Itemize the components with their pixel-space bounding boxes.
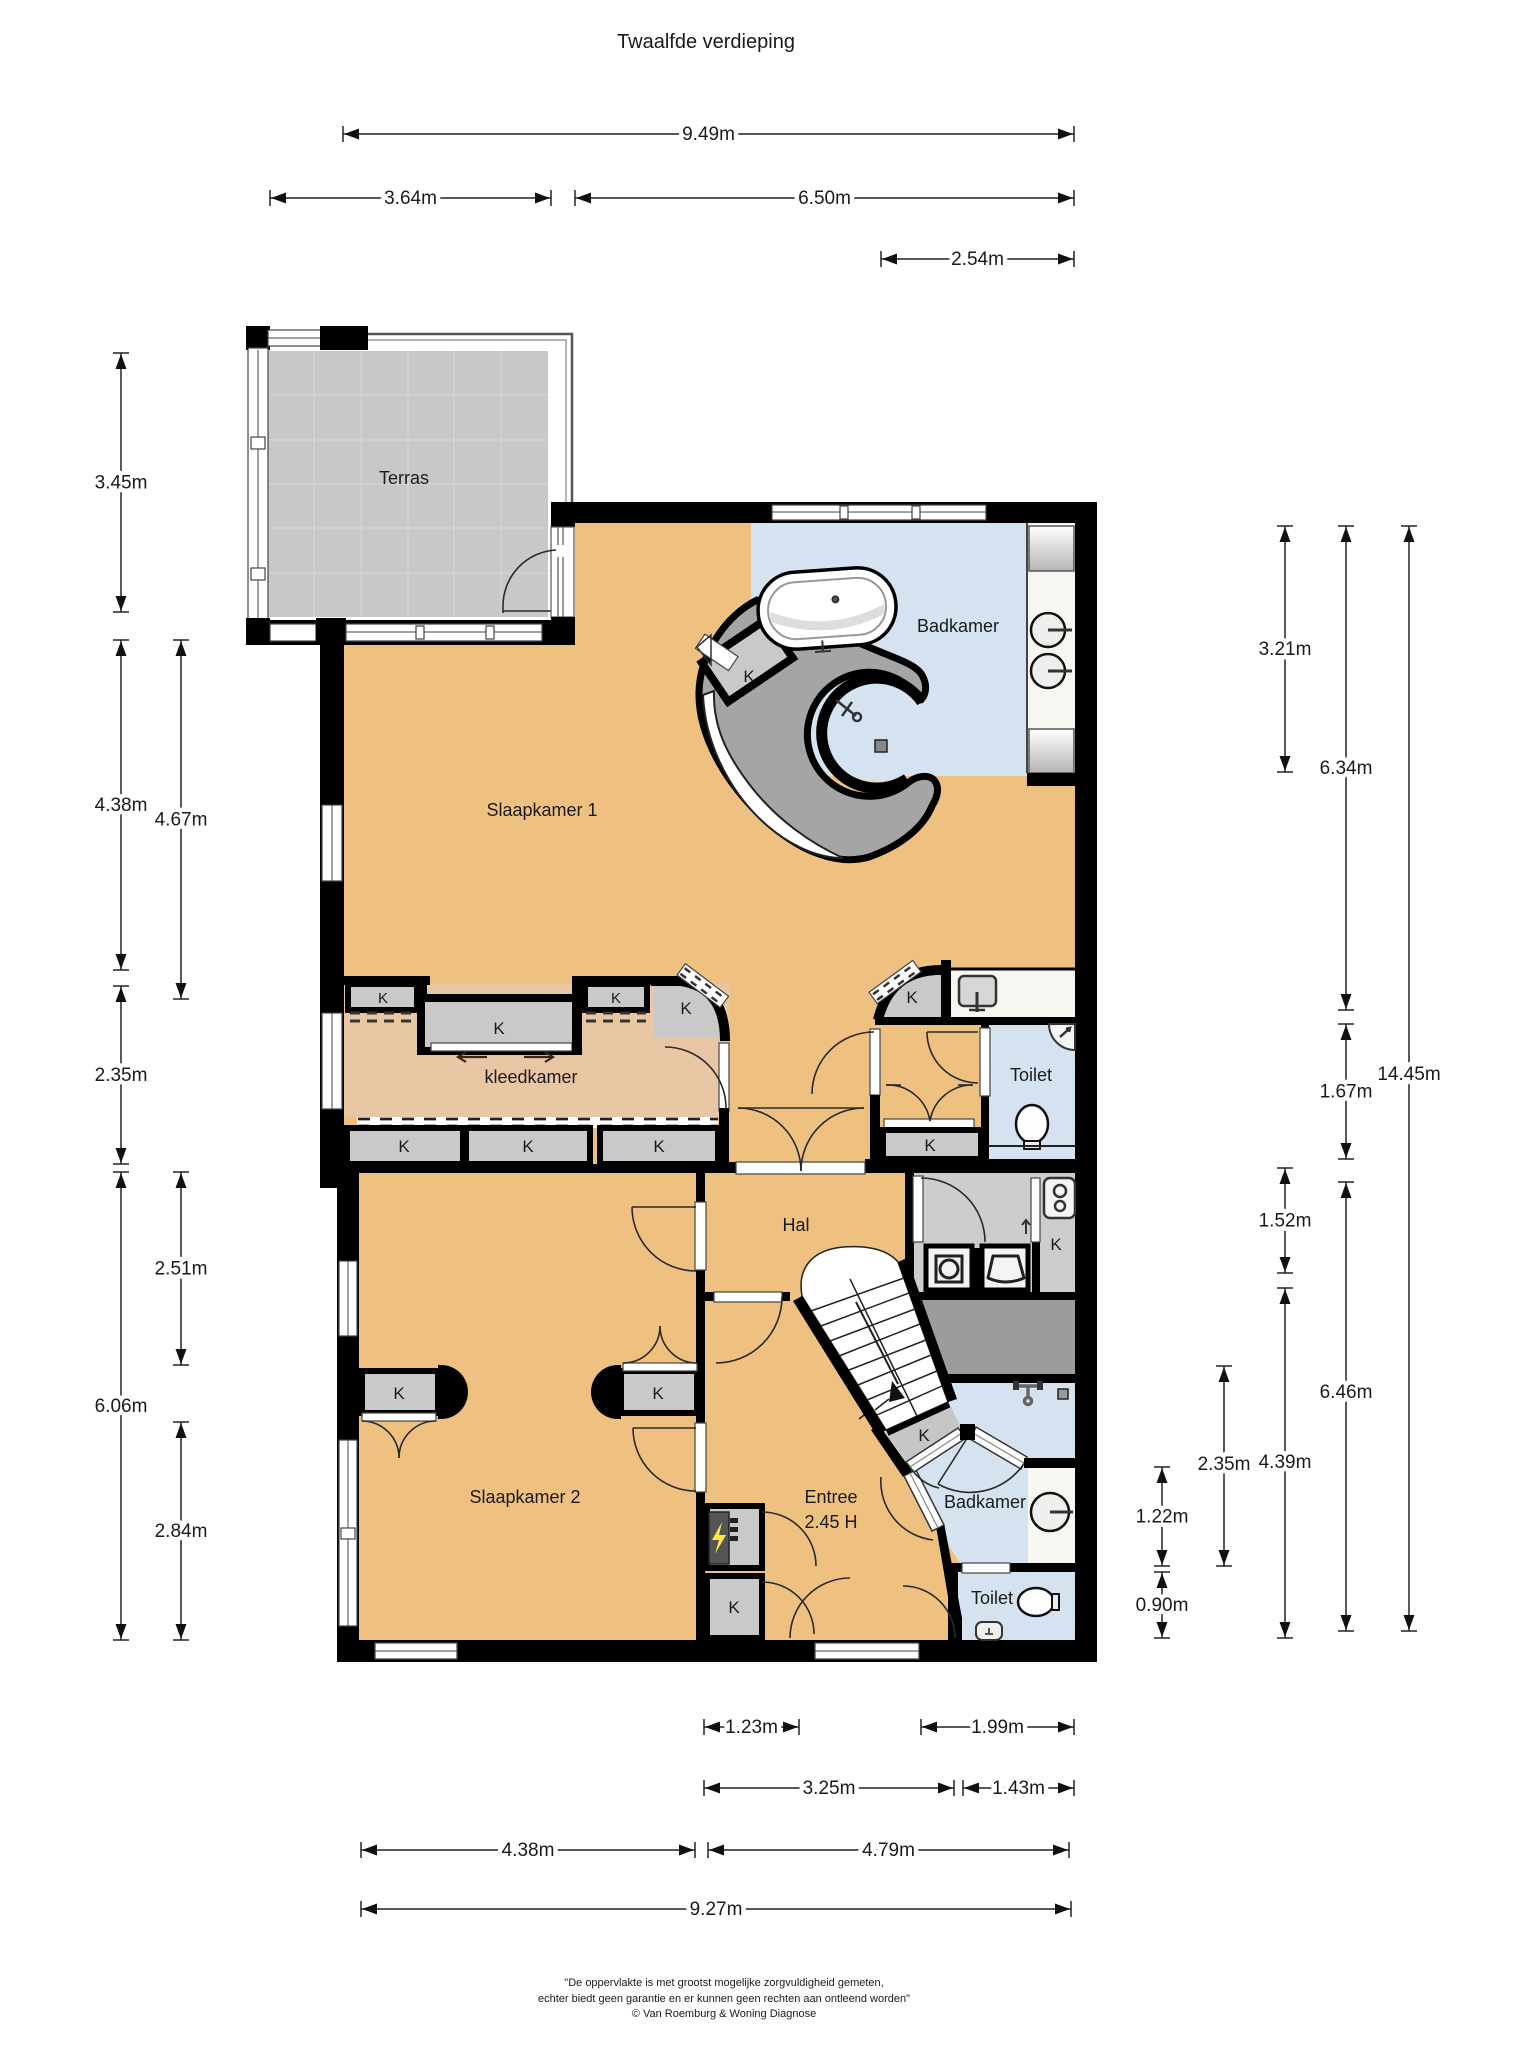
svg-text:Twaalfde verdieping: Twaalfde verdieping [617, 31, 795, 53]
svg-text:4.79m: 4.79m [862, 1840, 915, 1861]
svg-text:Badkamer: Badkamer [917, 616, 999, 636]
svg-text:Entree: Entree [804, 1487, 857, 1507]
svg-text:K: K [906, 988, 918, 1007]
svg-text:2.45 H: 2.45 H [804, 1512, 857, 1532]
svg-text:K: K [611, 990, 621, 1007]
svg-text:1.43m: 1.43m [992, 1778, 1045, 1799]
svg-text:6.06m: 6.06m [95, 1396, 148, 1417]
svg-text:3.25m: 3.25m [803, 1778, 856, 1799]
svg-text:K: K [652, 1384, 664, 1403]
svg-text:Terras: Terras [379, 468, 429, 488]
svg-text:1.99m: 1.99m [971, 1717, 1024, 1738]
svg-text:6.46m: 6.46m [1320, 1382, 1373, 1403]
svg-text:14.45m: 14.45m [1377, 1064, 1440, 1085]
svg-text:2.35m: 2.35m [95, 1065, 148, 1086]
svg-text:K: K [924, 1136, 936, 1155]
svg-text:2.84m: 2.84m [155, 1521, 208, 1542]
svg-text:K: K [378, 990, 388, 1007]
svg-text:9.49m: 9.49m [682, 124, 735, 145]
svg-text:1.67m: 1.67m [1320, 1082, 1373, 1103]
svg-text:6.50m: 6.50m [798, 188, 851, 209]
svg-text:Toilet: Toilet [971, 1588, 1013, 1608]
svg-text:1.52m: 1.52m [1259, 1211, 1312, 1232]
svg-text:1.22m: 1.22m [1136, 1507, 1189, 1528]
svg-text:Slaapkamer 1: Slaapkamer 1 [486, 800, 597, 820]
svg-text:K: K [393, 1384, 405, 1403]
svg-text:3.64m: 3.64m [384, 188, 437, 209]
svg-text:1.23m: 1.23m [725, 1717, 778, 1738]
svg-text:3.45m: 3.45m [95, 473, 148, 494]
svg-text:4.67m: 4.67m [155, 810, 208, 831]
svg-text:© Van Roemburg & Woning Diagno: © Van Roemburg & Woning Diagnose [632, 2008, 816, 2020]
svg-text:0.90m: 0.90m [1136, 1595, 1189, 1616]
svg-text:echter biedt geen garantie en: echter biedt geen garantie en er kunnen … [538, 1993, 910, 2005]
svg-text:K: K [522, 1137, 534, 1156]
svg-text:4.38m: 4.38m [502, 1840, 555, 1861]
svg-text:K: K [918, 1426, 930, 1445]
svg-text:2.51m: 2.51m [155, 1259, 208, 1280]
svg-text:Toilet: Toilet [1010, 1065, 1052, 1085]
svg-text:2.35m: 2.35m [1198, 1454, 1251, 1475]
svg-text:K: K [680, 999, 692, 1018]
svg-text:"De oppervlakte is met grootst: "De oppervlakte is met grootst mogelijke… [564, 1977, 883, 1989]
svg-text:3.21m: 3.21m [1259, 639, 1312, 660]
svg-text:4.38m: 4.38m [95, 795, 148, 816]
svg-text:2.54m: 2.54m [951, 249, 1004, 270]
svg-text:Slaapkamer 2: Slaapkamer 2 [469, 1487, 580, 1507]
svg-text:Badkamer: Badkamer [944, 1492, 1026, 1512]
svg-text:6.34m: 6.34m [1320, 758, 1373, 779]
svg-text:K: K [1050, 1235, 1062, 1254]
svg-text:4.39m: 4.39m [1259, 1452, 1312, 1473]
svg-text:K: K [728, 1598, 740, 1617]
svg-text:K: K [653, 1137, 665, 1156]
svg-text:K: K [493, 1019, 505, 1038]
svg-text:K: K [398, 1137, 410, 1156]
svg-text:Hal: Hal [782, 1215, 809, 1235]
svg-text:K: K [743, 667, 755, 686]
svg-text:kleedkamer: kleedkamer [484, 1067, 577, 1087]
svg-text:9.27m: 9.27m [690, 1899, 743, 1920]
